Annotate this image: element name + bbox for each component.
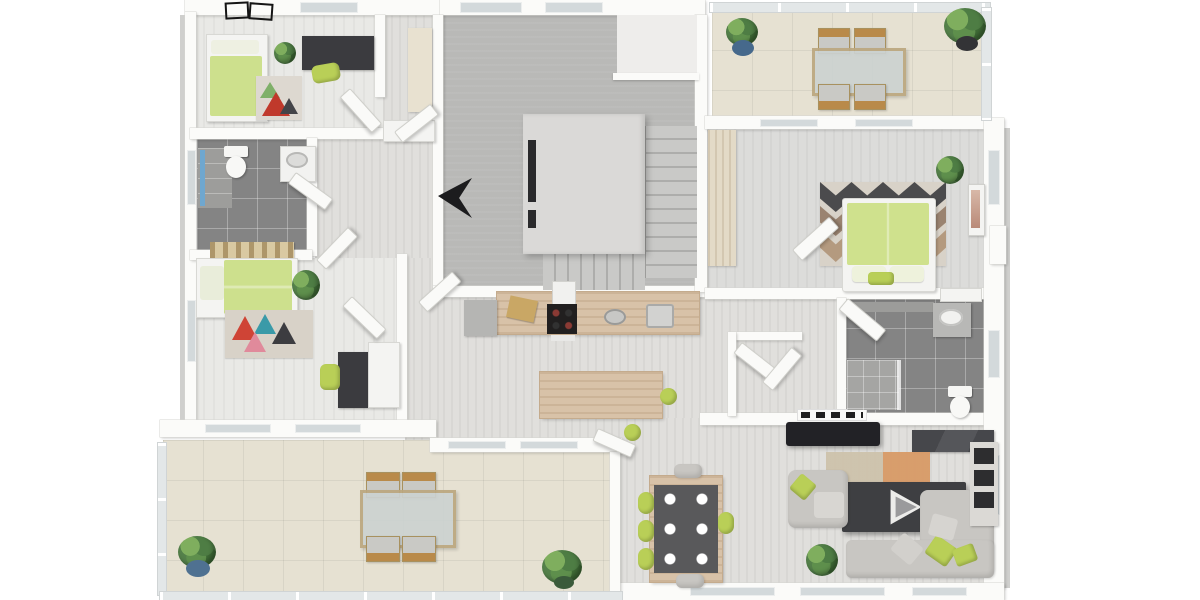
floorplan-canvas xyxy=(0,0,1200,600)
bath1-shower-glass xyxy=(200,150,205,206)
bath2-toilet-bowl xyxy=(950,396,970,418)
bath2-shower-glass xyxy=(897,360,901,410)
tv-flatscreen xyxy=(786,422,880,446)
bedroom2-wardrobe xyxy=(368,342,400,408)
window-right-2 xyxy=(988,330,1000,378)
stair-block-slot-1 xyxy=(528,140,536,202)
terrace-bottom-chair-4 xyxy=(402,536,436,562)
wall-vestibule-left xyxy=(728,332,736,416)
roof-window-symbol-2 xyxy=(248,2,273,21)
window-living-3 xyxy=(912,587,967,596)
kitchen-sink-square xyxy=(646,304,674,328)
kitchen-end-cabinet xyxy=(464,300,497,336)
bath2-basin xyxy=(939,309,963,326)
oven-handle xyxy=(551,335,575,341)
roof-window-symbol-1 xyxy=(225,1,250,19)
master-cushion-lime xyxy=(868,272,894,285)
bath1-basin xyxy=(286,152,308,168)
wall-art-print xyxy=(971,190,980,228)
wall-vestibule-top xyxy=(728,332,802,340)
wall-outer-left xyxy=(185,12,196,424)
stair-treads-right xyxy=(645,126,697,278)
stair-block xyxy=(523,114,645,254)
stair-block-slot-2 xyxy=(528,210,536,228)
dining-chair-green-2 xyxy=(638,520,654,542)
railing-terrace-top xyxy=(710,3,990,12)
railing-terrace-bottom-left xyxy=(158,443,166,595)
window-top-1 xyxy=(300,2,358,13)
window-top-3 xyxy=(545,2,603,13)
window-left-2 xyxy=(187,300,196,362)
window-bedroom2-outer-2 xyxy=(295,424,361,433)
dining-chair-gray-bottom xyxy=(676,574,704,588)
railing-terrace-bottom xyxy=(160,592,622,600)
plant-master-icon xyxy=(936,156,964,184)
stair-upper-landing xyxy=(617,15,697,73)
bed2-pillow xyxy=(200,266,224,300)
window-master-1 xyxy=(760,119,818,127)
window-living-1 xyxy=(690,587,775,596)
wall-bathroom2-left xyxy=(837,298,846,420)
bed1-duvet xyxy=(210,56,262,116)
terrace-top-chair-4 xyxy=(854,84,886,110)
shelf-box-1 xyxy=(974,448,994,464)
wall-terrace-right xyxy=(610,452,620,592)
window-left-1 xyxy=(187,150,196,205)
kitchen-island-bar xyxy=(540,372,662,418)
shelf-box-3 xyxy=(974,492,994,508)
bar-stool-2 xyxy=(624,424,641,441)
window-top-2 xyxy=(460,2,522,13)
chimney-box xyxy=(990,226,1006,264)
master-bed-duvet xyxy=(847,203,929,265)
radiator-living xyxy=(798,410,866,420)
dining-chair-green-3 xyxy=(638,548,654,570)
bedroom2-chair xyxy=(320,364,340,390)
window-hall-1 xyxy=(448,441,506,449)
pot-blue-terrace-top xyxy=(732,40,754,56)
dining-chair-green-4 xyxy=(718,512,734,534)
bath2-wall-cabinet xyxy=(940,288,982,302)
cooktop xyxy=(547,304,577,334)
bath2-shower xyxy=(847,360,899,410)
plant-bedroom1-icon xyxy=(274,42,296,64)
bed1-pillow xyxy=(211,40,259,54)
plant-bedroom2-icon xyxy=(292,270,320,300)
shelf-box-2 xyxy=(974,470,994,486)
terrace-top-chair-3 xyxy=(818,84,850,110)
window-living-2 xyxy=(800,587,885,596)
bedroom2-desk xyxy=(338,352,368,408)
terrace-bottom-chair-3 xyxy=(366,536,400,562)
plant-living-icon xyxy=(806,544,838,576)
bed2-duvet xyxy=(224,260,292,314)
bath1-toilet-bowl xyxy=(226,156,246,178)
wall-master-top xyxy=(705,116,990,129)
dining-chair-gray-top xyxy=(674,464,702,478)
pot-dark-terrace-top xyxy=(956,36,978,51)
room-hallway-mid xyxy=(315,138,437,258)
stair-railing xyxy=(613,73,699,80)
armchair-cushion xyxy=(814,492,844,518)
window-right-1 xyxy=(988,150,1000,205)
wall-bedroom1-bottom xyxy=(190,128,385,139)
wall-stair-left xyxy=(433,15,443,292)
master-wardrobe xyxy=(708,130,736,266)
master-pillow-2 xyxy=(890,266,924,282)
dining-table-top xyxy=(654,485,718,573)
kitchen-sink-round xyxy=(604,309,626,325)
dining-chair-green-1 xyxy=(638,492,654,514)
bar-stool-1 xyxy=(660,388,677,405)
window-hall-2 xyxy=(520,441,578,449)
window-master-2 xyxy=(855,119,913,127)
room-vestibule-hall xyxy=(705,290,845,420)
wall-bedroom1-right xyxy=(375,15,385,97)
pot-green-terrace-bottom xyxy=(554,576,574,589)
hall-tall-cabinet xyxy=(408,28,432,112)
pot-blue-terrace-bottom xyxy=(186,560,210,577)
window-bedroom2-outer-1 xyxy=(205,424,271,433)
